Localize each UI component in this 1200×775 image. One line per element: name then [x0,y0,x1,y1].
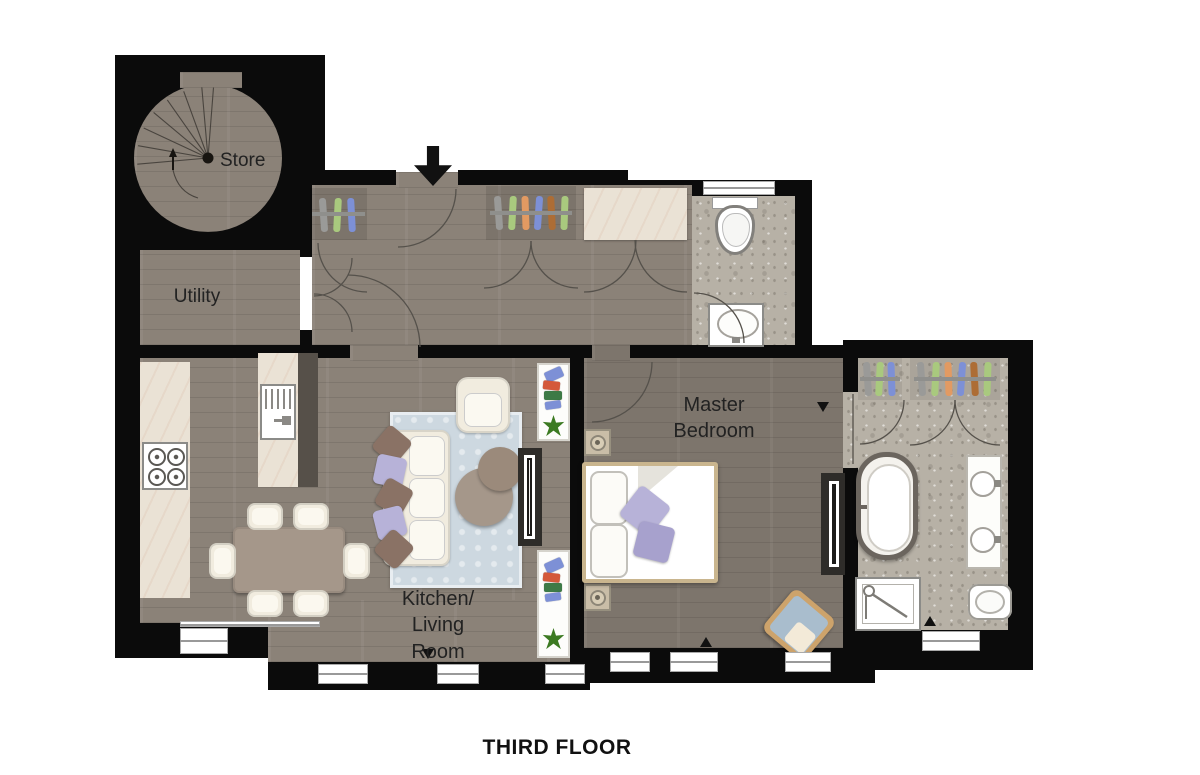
room-label-store: Store [220,148,310,173]
threshold-marker [924,616,936,626]
threshold-marker [700,637,712,647]
threshold-marker [817,402,829,412]
room-label-kitchen-living: Kitchen/ Living Room [358,586,518,665]
room-label-utility: Utility [147,284,247,309]
room-label-master-bedroom: Master Bedroom [634,392,794,445]
floorplan-canvas: Store Utility Kitchen/ Living Room Maste… [0,0,1200,775]
floor-title: THIRD FLOOR [0,736,1114,760]
door-swing-arcs [0,0,1200,775]
